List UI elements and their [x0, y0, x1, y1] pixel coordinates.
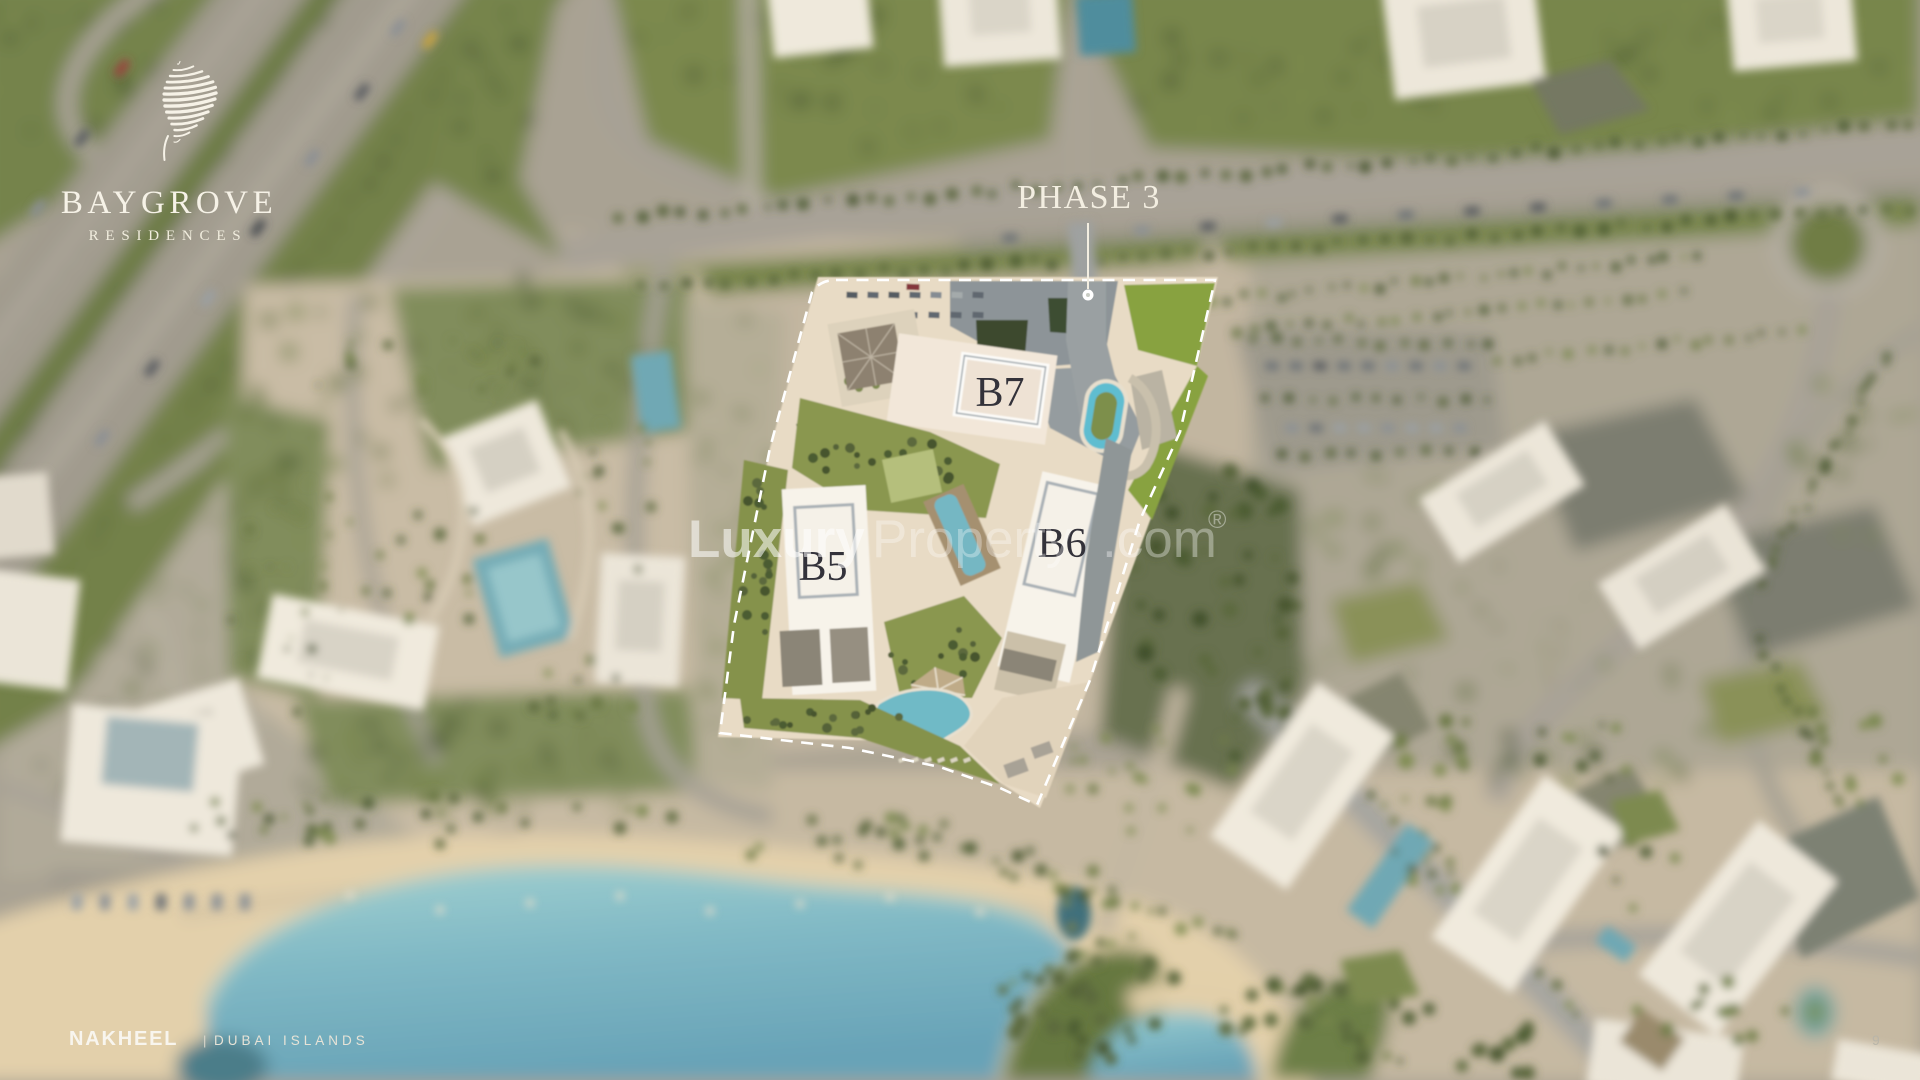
svg-text:Luxury: Luxury — [688, 510, 865, 569]
svg-text:|: | — [203, 1033, 206, 1048]
svg-text:BAYGROVE: BAYGROVE — [61, 185, 277, 221]
svg-text:DUBAI ISLANDS: DUBAI ISLANDS — [214, 1033, 369, 1048]
svg-text:PHASE 3: PHASE 3 — [1017, 179, 1161, 216]
svg-text:Property: Property — [872, 510, 1073, 569]
svg-text:B7: B7 — [975, 370, 1024, 416]
svg-text:RESIDENCES: RESIDENCES — [89, 228, 248, 244]
svg-text:.com: .com — [1102, 510, 1217, 569]
svg-text:9: 9 — [1872, 1032, 1880, 1048]
svg-text:®: ® — [1208, 506, 1227, 534]
svg-text:NAKHEEL: NAKHEEL — [69, 1028, 178, 1050]
